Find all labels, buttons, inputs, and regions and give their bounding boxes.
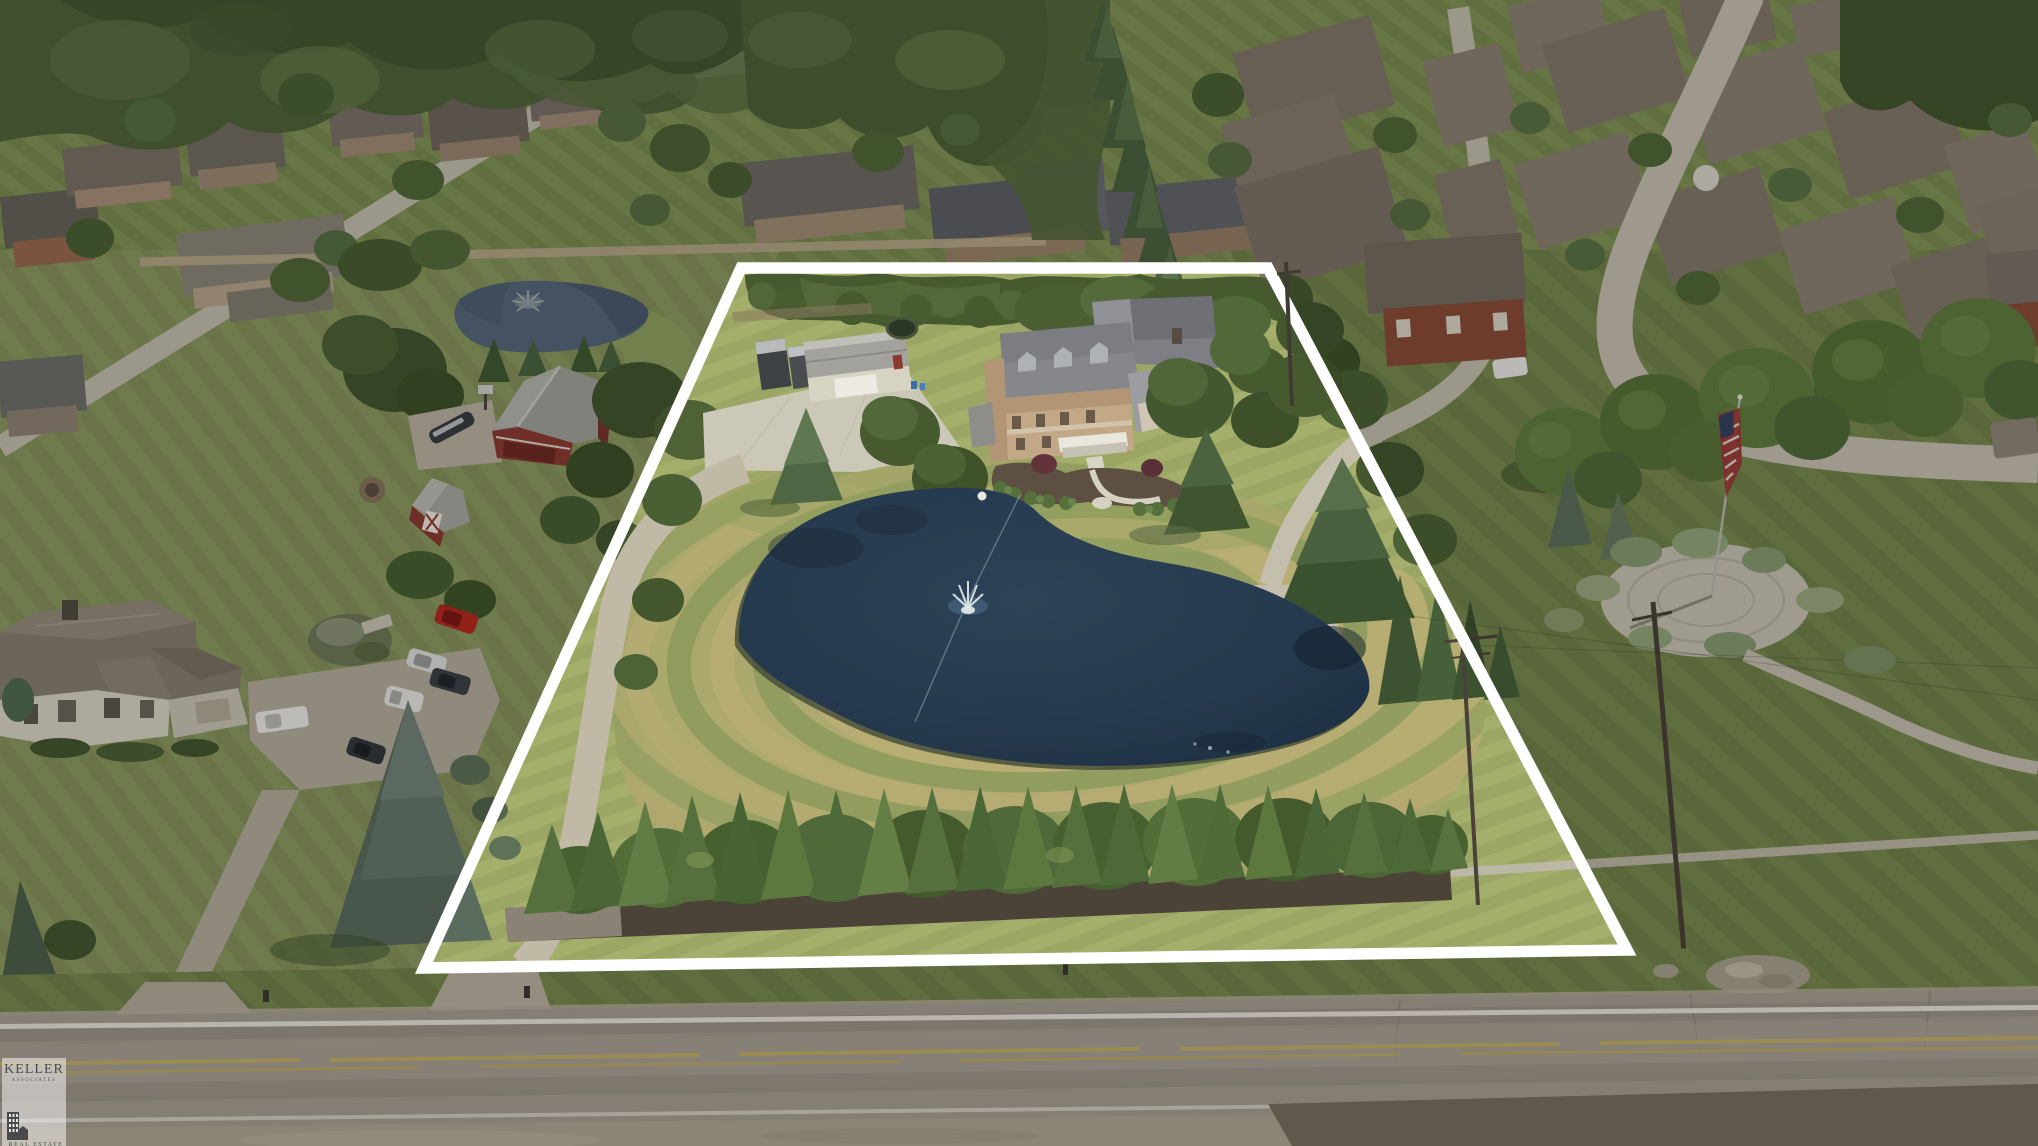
svg-text:REAL ESTATE: REAL ESTATE: [9, 1142, 64, 1146]
svg-text:ASSOCIATES: ASSOCIATES: [12, 1078, 57, 1083]
svg-text:KELLER: KELLER: [4, 1062, 64, 1077]
